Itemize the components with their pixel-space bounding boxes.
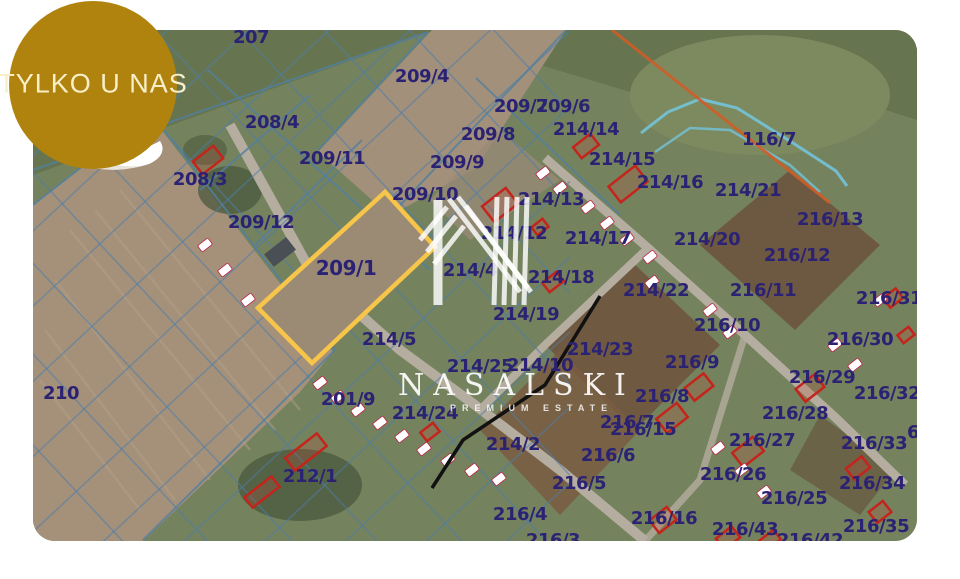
parcel-label-216-35: 216/35 (843, 518, 909, 536)
parcel-label-216-42: 216/42 (777, 532, 843, 541)
parcel-label-216-5: 216/5 (552, 475, 606, 493)
parcel-label-216-13: 216/13 (797, 211, 863, 229)
house-number-marker (464, 463, 479, 477)
parcel-label-209-8: 209/8 (461, 126, 515, 144)
parcel-label-209-4: 209/4 (395, 68, 449, 86)
building-outline (420, 423, 439, 442)
badge-text: TYLKO U NAS (0, 69, 188, 100)
parcel-label-216-6: 216/6 (581, 447, 635, 465)
parcel-label-208-3: 208/3 (173, 171, 227, 189)
house-number-marker (642, 250, 657, 264)
parcel-label-216-33: 216/33 (841, 435, 907, 453)
parcel-label-201-9: 201/9 (321, 391, 375, 409)
parcel-label-214-24: 214/24 (392, 405, 458, 423)
parcel-label-209-1: 209/1 (316, 258, 376, 278)
parcel-label-209-12: 209/12 (228, 214, 294, 232)
building-outline (897, 327, 914, 343)
parcel-label-214-17: 214/17 (565, 230, 631, 248)
parcel-label-216-10: 216/10 (694, 317, 760, 335)
parcel-label-216-34: 216/34 (839, 475, 905, 493)
parcel-label-216-12: 216/12 (764, 247, 830, 265)
parcel-label-214-5: 214/5 (362, 331, 416, 349)
parcel-label-214-14: 214/14 (553, 121, 619, 139)
parcel-label-216-29: 216/29 (789, 369, 855, 387)
parcel-label-214-2: 214/2 (486, 436, 540, 454)
parcel-label-214-23: 214/23 (567, 341, 633, 359)
parcel-label-214-20: 214/20 (674, 231, 740, 249)
house-number-marker (240, 293, 255, 307)
parcel-label-216-3: 216/3 (526, 532, 580, 541)
parcel-label-212-1: 212/1 (283, 468, 337, 486)
parcel-label-214-10: 214/10 (507, 357, 573, 375)
parcel-label-216-43: 216/43 (712, 521, 778, 539)
house-number-marker (372, 416, 387, 430)
parcel-label-216-4: 216/4 (493, 506, 547, 524)
house-number-marker (394, 429, 409, 443)
parcel-label-208-4: 208/4 (245, 114, 299, 132)
house-number-marker (710, 441, 725, 455)
parcel-label-209-6: 209/6 (536, 98, 590, 116)
parcel-label-214-19: 214/19 (493, 306, 559, 324)
parcel-label-216-16: 216/16 (631, 510, 697, 528)
parcel-label-116-7: 116/7 (742, 131, 796, 149)
building-outline (245, 476, 280, 507)
parcel-label-209-10: 209/10 (392, 186, 458, 204)
parcel-label-216-30: 216/30 (827, 331, 893, 349)
parcel-label-216-8: 216/8 (635, 388, 689, 406)
parcel-label-214-21: 214/21 (715, 182, 781, 200)
parcel-label-209-9: 209/9 (430, 154, 484, 172)
parcel-label-214-13: 214/13 (518, 191, 584, 209)
parcel-label-214-25: 214/25 (447, 358, 513, 376)
parcel-label-216-28: 216/28 (762, 405, 828, 423)
promo-badge: TYLKO U NAS (9, 1, 177, 169)
parcel-label-214-12: 214/12 (481, 225, 547, 243)
house-number-marker (491, 472, 506, 486)
parcel-label-214-15: 214/15 (589, 151, 655, 169)
parcel-label-216-32: 216/32 (854, 385, 917, 403)
parcel-label-214-16: 214/16 (637, 174, 703, 192)
parcel-label-6-: 6/ (907, 424, 917, 442)
listing-graphic: 207209/4209/7209/6208/4214/14209/8116/72… (0, 0, 960, 579)
parcel-label-214-18: 214/18 (528, 269, 594, 287)
house-number-marker (416, 442, 431, 456)
house-number-marker (197, 238, 212, 252)
parcel-label-216-25: 216/25 (761, 490, 827, 508)
parcel-label-216-31: 216/31 (856, 290, 917, 308)
house-number-marker (535, 166, 550, 180)
parcel-label-210: 210 (43, 385, 79, 403)
parcel-label-214-4: 214/4 (443, 262, 497, 280)
house-number-marker (312, 376, 327, 390)
parcel-label-207: 207 (233, 30, 269, 47)
parcel-label-216-27: 216/27 (729, 432, 795, 450)
parcel-label-209-11: 209/11 (299, 150, 365, 168)
parcel-label-216-9: 216/9 (665, 354, 719, 372)
parcel-label-214-22: 214/22 (623, 282, 689, 300)
house-number-marker (217, 263, 232, 277)
parcel-label-216-11: 216/11 (730, 282, 796, 300)
parcel-label-216-15: 216/15 (610, 421, 676, 439)
building-outline (482, 188, 518, 222)
parcel-label-216-26: 216/26 (700, 466, 766, 484)
barn-building (264, 237, 296, 267)
